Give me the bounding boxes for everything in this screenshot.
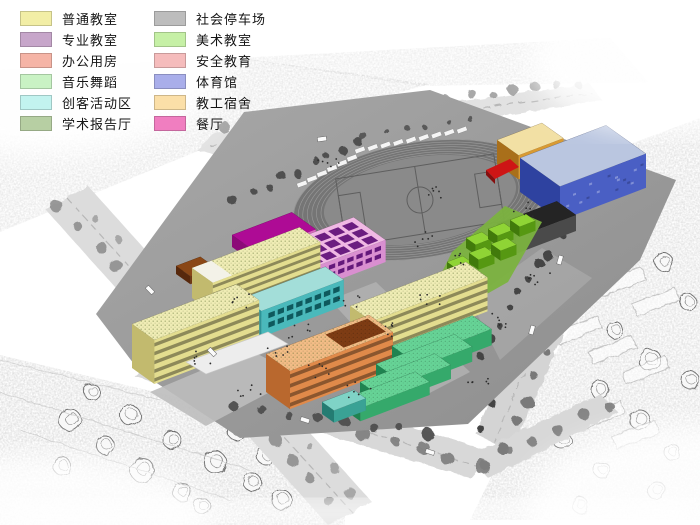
legend-item: 音乐舞蹈 <box>20 71 132 92</box>
legend-item: 餐厅 <box>154 113 266 134</box>
legend-item: 安全教育 <box>154 50 266 71</box>
legend-item: 教工宿舍 <box>154 92 266 113</box>
legend-label: 美术教室 <box>196 30 252 49</box>
legend-label: 专业教室 <box>62 30 118 49</box>
legend-swatch <box>154 95 186 110</box>
legend-column-right: 社会停车场 美术教室 安全教育 体育馆 教工宿舍 餐厅 <box>154 8 266 134</box>
legend-swatch <box>154 53 186 68</box>
legend-label: 办公用房 <box>62 51 118 70</box>
legend-item: 美术教室 <box>154 29 266 50</box>
legend-item: 专业教室 <box>20 29 132 50</box>
campus-masterplan-rendering: 普通教室 专业教室 办公用房 音乐舞蹈 创客活动区 学术报告厅 社会停车场 美术… <box>0 0 700 525</box>
legend-swatch <box>20 74 52 89</box>
legend-swatch <box>154 32 186 47</box>
legend-item: 学术报告厅 <box>20 113 132 134</box>
legend-label: 体育馆 <box>196 72 238 91</box>
legend-label: 社会停车场 <box>196 9 266 28</box>
legend-swatch <box>20 95 52 110</box>
legend-item: 普通教室 <box>20 8 132 29</box>
legend-item: 办公用房 <box>20 50 132 71</box>
legend-label: 安全教育 <box>196 51 252 70</box>
legend-column-left: 普通教室 专业教室 办公用房 音乐舞蹈 创客活动区 学术报告厅 <box>20 8 132 134</box>
legend-label: 普通教室 <box>62 9 118 28</box>
legend-item: 体育馆 <box>154 71 266 92</box>
legend-label: 音乐舞蹈 <box>62 72 118 91</box>
legend-item: 创客活动区 <box>20 92 132 113</box>
legend: 普通教室 专业教室 办公用房 音乐舞蹈 创客活动区 学术报告厅 社会停车场 美术… <box>20 8 266 134</box>
legend-label: 教工宿舍 <box>196 93 252 112</box>
legend-label: 学术报告厅 <box>62 114 132 133</box>
legend-swatch <box>20 11 52 26</box>
legend-swatch <box>154 74 186 89</box>
legend-item: 社会停车场 <box>154 8 266 29</box>
legend-label: 餐厅 <box>196 114 224 133</box>
legend-swatch <box>20 53 52 68</box>
legend-swatch <box>154 116 186 131</box>
legend-swatch <box>154 11 186 26</box>
legend-swatch <box>20 116 52 131</box>
legend-label: 创客活动区 <box>62 93 132 112</box>
legend-swatch <box>20 32 52 47</box>
